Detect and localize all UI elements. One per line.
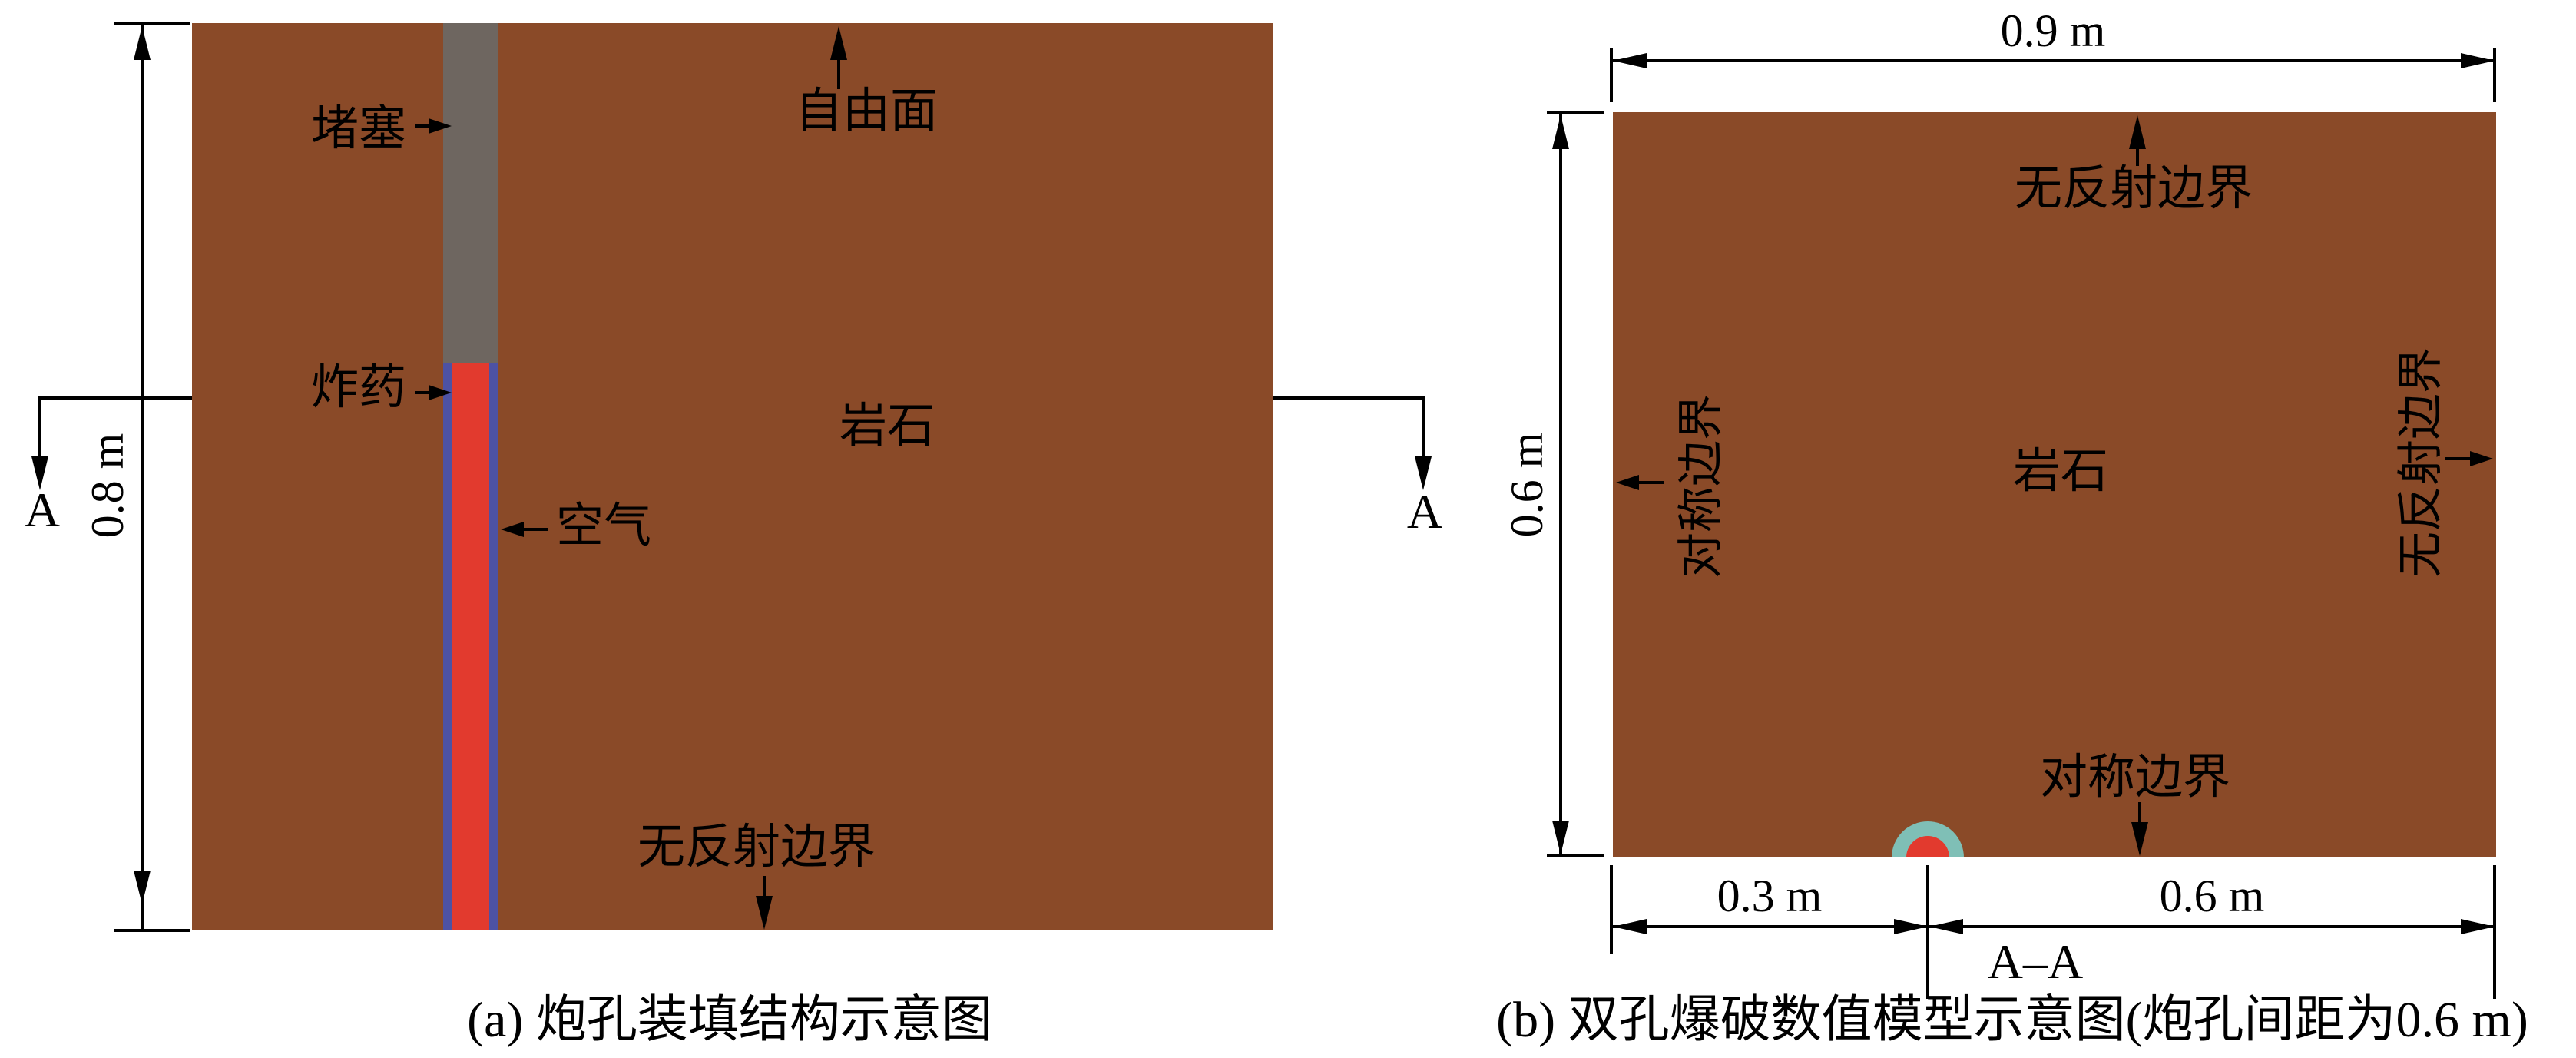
dim-label-width-b: 0.9 m <box>2001 8 2106 54</box>
dim-line-0-3m <box>1611 925 1928 928</box>
dim-label-height-a: 0.8 m <box>84 433 131 539</box>
arrow-right-icon <box>2461 53 2495 68</box>
arrow-left-icon <box>1929 919 1963 934</box>
non-reflective-leader-a <box>763 876 766 897</box>
dim-line-0-6m-left <box>1559 112 1562 857</box>
right-leader-b <box>2445 457 2472 460</box>
arrow-right-icon <box>429 385 452 400</box>
free-surface-label: 自由面 <box>795 88 938 135</box>
dim-tick-bottom-a <box>114 929 190 932</box>
arrow-down-icon <box>2131 822 2148 856</box>
arrow-down-icon <box>134 871 151 904</box>
rock-label-a: 岩石 <box>839 403 935 450</box>
dim-tick-top-a <box>114 22 190 25</box>
dim-label-0-6m-bottom: 0.6 m <box>2160 873 2265 919</box>
arrow-up-icon <box>134 26 151 60</box>
arrow-left-icon <box>501 522 524 537</box>
arrow-right-icon <box>2470 451 2493 466</box>
dim-label-height-b: 0.6 m <box>1504 433 1550 538</box>
section-line-left <box>40 396 192 400</box>
arrow-left-icon <box>1616 475 1639 490</box>
dim-line-0-8m <box>141 23 144 930</box>
explosive-label: 炸药 <box>311 364 406 412</box>
section-label-aa: A–A <box>1988 937 2083 987</box>
air-label: 空气 <box>556 502 651 550</box>
dim-line-0-6m-bottom <box>1928 925 2495 928</box>
arrow-up-icon <box>1552 115 1569 149</box>
dim-line-0-9m <box>1611 59 2495 62</box>
dim-tick-top-left-b <box>1547 111 1604 114</box>
arrow-right-icon <box>2461 919 2495 934</box>
arrow-up-icon <box>2129 115 2146 149</box>
arrow-down-icon <box>756 896 773 930</box>
free-surface-leader <box>837 58 840 89</box>
symmetry-label-left-b: 对称边界 <box>1678 394 1724 579</box>
rock-block-a <box>192 23 1273 930</box>
left-leader-b <box>1637 481 1664 484</box>
dim-tick-bottom-left-b <box>1547 854 1604 857</box>
non-reflective-label-a: 无反射边界 <box>637 824 876 871</box>
section-line-right <box>1273 396 1425 400</box>
caption-a: (a) 炮孔装填结构示意图 <box>467 995 992 1046</box>
arrow-left-icon <box>1613 53 1647 68</box>
stemming-label: 堵塞 <box>311 105 406 153</box>
dim-tick-bottom-left <box>1610 865 1613 954</box>
explosive-column <box>452 363 489 930</box>
arrow-right-icon <box>1894 919 1928 934</box>
air-gap-column <box>443 363 498 930</box>
section-letter-right: A <box>1407 487 1442 536</box>
rock-label-b: 岩石 <box>2013 448 2108 496</box>
non-reflective-label-right-b: 无反射边界 <box>2398 347 2444 578</box>
non-reflective-label-top-b: 无反射边界 <box>2015 165 2253 213</box>
arrow-left-icon <box>1613 919 1647 934</box>
stemming-column <box>443 23 498 363</box>
figure-canvas: 0.8 m A A 堵塞 炸药 空气 自由面 岩石 无反射边界 (a) 炮孔装填… <box>0 0 2576 1058</box>
air-leader <box>522 528 548 531</box>
symmetry-label-bottom-b: 对称边界 <box>2040 754 2230 801</box>
dim-label-0-3m: 0.3 m <box>1717 873 1823 919</box>
caption-b: (b) 双孔爆破数值模型示意图(炮孔间距为0.6 m) <box>1496 995 2528 1046</box>
section-letter-left: A <box>25 486 60 535</box>
arrow-up-icon <box>830 26 847 60</box>
arrow-down-icon <box>1552 821 1569 854</box>
arrow-right-icon <box>429 118 452 134</box>
